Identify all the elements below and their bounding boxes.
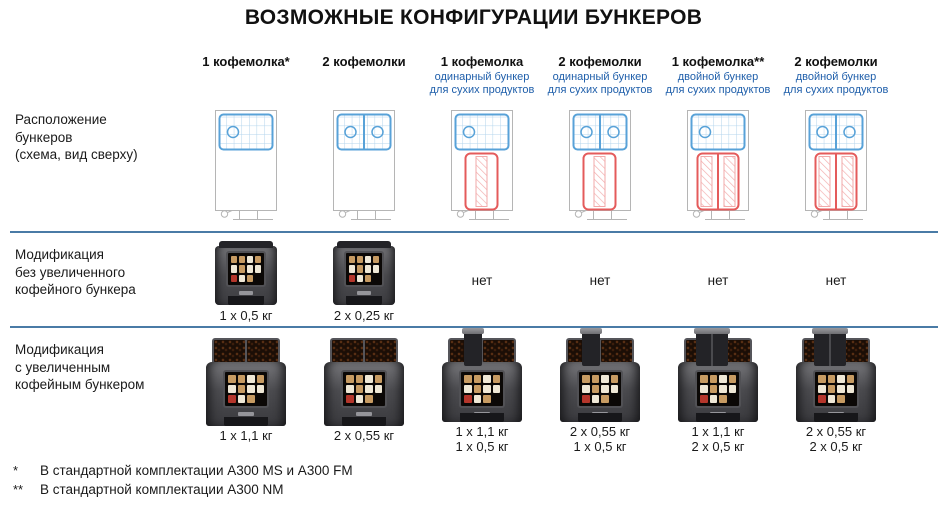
top-view-schematic-1-grinder-double-dry <box>683 108 753 226</box>
drink-icon <box>483 385 491 393</box>
drink-icon <box>474 385 482 393</box>
drink-icon <box>483 375 491 383</box>
footnote-1: * В стандартной комплектации A300 MS и A… <box>13 461 353 480</box>
column-subtitle: двойной бункер для сухих продуктов <box>777 71 895 97</box>
drink-icon <box>373 275 379 282</box>
drink-icon <box>375 385 383 393</box>
drink-icon <box>373 265 379 272</box>
drink-icon <box>365 256 371 263</box>
drink-icon <box>346 385 354 393</box>
drink-icon <box>847 375 855 383</box>
drink-icon <box>611 385 619 393</box>
column-title: 2 кофемолки <box>541 55 659 69</box>
enlarged-cell-2: 2 х 0,55 кг <box>305 328 423 455</box>
machine-dispenser <box>342 417 386 426</box>
not-available-text: нет <box>590 273 611 288</box>
capacity-caption: 1 х 1,1 кг <box>219 429 272 444</box>
standard-cell-3: нет <box>423 233 541 328</box>
capacity-caption: 1 х 1,1 кг 2 х 0,5 кг <box>691 425 744 455</box>
drink-icon <box>238 375 246 383</box>
drink-icon <box>247 275 253 282</box>
standard-cell-5: нет <box>659 233 777 328</box>
footnote-2: ** В стандартной комплектации A300 NM <box>13 480 353 499</box>
drink-icon <box>700 395 708 403</box>
drink-icon <box>464 395 472 403</box>
drink-icon <box>357 275 363 282</box>
drink-icon <box>257 375 265 383</box>
drink-icon <box>828 375 836 383</box>
drink-menu-screen <box>459 370 505 408</box>
drink-icon <box>375 375 383 383</box>
enlarged-cell-6: 2 х 0,55 кг 2 х 0,5 кг <box>777 328 895 455</box>
drink-icon <box>592 385 600 393</box>
drink-icon <box>365 275 371 282</box>
footnote-marker: * <box>13 461 40 480</box>
enlarged-cell-5: 1 х 1,1 кг 2 х 0,5 кг <box>659 328 777 455</box>
drink-icon <box>239 275 245 282</box>
hopper-configurations-page: ВОЗМОЖНЫЕ КОНФИГУРАЦИИ БУНКЕРОВ 1 кофемо… <box>0 0 947 519</box>
column-subtitle: одинарный бункер для сухих продуктов <box>541 71 659 97</box>
coffee-machine-photo-enlarged-hopper-double-dry <box>678 332 758 422</box>
schematic-cell-6 <box>777 105 895 233</box>
drink-icon <box>365 265 371 272</box>
page-title: ВОЗМОЖНЫЕ КОНФИГУРАЦИИ БУНКЕРОВ <box>0 6 947 30</box>
column-title: 1 кофемолка <box>423 55 541 69</box>
dry-products-container <box>582 328 600 366</box>
drink-menu-screen <box>223 370 269 408</box>
dry-products-container-double <box>814 328 846 366</box>
drink-icon <box>365 395 373 403</box>
machine-dispenser <box>224 417 268 426</box>
top-view-schematic-2-grinders-single-dry <box>565 108 635 226</box>
footnote-text: В стандартной комплектации A300 NM <box>40 480 284 499</box>
capacity-caption: 2 х 0,55 кг <box>334 429 394 444</box>
drink-icon <box>357 256 363 263</box>
machine-dispenser <box>228 296 264 305</box>
standard-cell-1: 1 х 0,5 кг <box>187 233 305 328</box>
drink-icon <box>349 275 355 282</box>
drink-icon <box>365 375 373 383</box>
drink-icon <box>828 385 836 393</box>
drink-icon <box>346 375 354 383</box>
drink-icon <box>464 385 472 393</box>
row-label-enlarged: Модификация с увеличенным кофейным бунке… <box>9 328 187 455</box>
drink-icon <box>601 385 609 393</box>
drink-icon <box>837 395 845 403</box>
coffee-machine-photo-enlarged-hopper-single-dry <box>560 332 640 422</box>
machine-button <box>356 412 372 416</box>
drink-icon <box>710 385 718 393</box>
column-header-4: 2 кофемолки одинарный бункер для сухих п… <box>541 53 659 105</box>
enlarged-cell-3: 1 х 1,1 кг 1 х 0,5 кг <box>423 328 541 455</box>
schematic-cell-3 <box>423 105 541 233</box>
drink-icon <box>582 385 590 393</box>
drink-menu-screen <box>344 251 384 287</box>
column-header-6: 2 кофемолки двойной бункер для сухих про… <box>777 53 895 105</box>
footnote-marker: ** <box>13 480 40 499</box>
bean-hopper <box>212 338 280 364</box>
header-spacer <box>9 53 187 105</box>
column-header-2: 2 кофемолки <box>305 53 423 105</box>
footnote-text: В стандартной комплектации A300 MS и A30… <box>40 461 353 480</box>
schematic-cell-4 <box>541 105 659 233</box>
column-title: 1 кофемолка* <box>187 55 305 69</box>
capacity-caption: 2 х 0,55 кг 2 х 0,5 кг <box>806 425 866 455</box>
drink-icon <box>356 375 364 383</box>
bean-hopper <box>566 338 634 364</box>
machine-lid <box>337 241 391 248</box>
schematic-cell-2 <box>305 105 423 233</box>
drink-icon <box>255 256 261 263</box>
drink-icon <box>601 395 609 403</box>
drink-icon <box>719 375 727 383</box>
coffee-machine-photo-enlarged-hopper <box>324 332 404 426</box>
drink-icon <box>228 385 236 393</box>
drink-icon <box>611 395 619 403</box>
schematic-cell-5 <box>659 105 777 233</box>
machine-button <box>238 412 254 416</box>
bean-hopper <box>448 338 516 364</box>
drink-icon <box>231 265 237 272</box>
coffee-machine-photo <box>215 241 277 305</box>
drink-icon <box>464 375 472 383</box>
top-view-schematic-1-grinder <box>211 108 281 226</box>
drink-icon <box>818 385 826 393</box>
footnotes: * В стандартной комплектации A300 MS и A… <box>13 461 353 499</box>
standard-cell-6: нет <box>777 233 895 328</box>
drink-icon <box>847 385 855 393</box>
drink-icon <box>837 375 845 383</box>
drink-icon <box>493 385 501 393</box>
top-view-schematic-1-grinder-single-dry <box>447 108 517 226</box>
drink-icon <box>474 395 482 403</box>
drink-icon <box>592 375 600 383</box>
drink-icon <box>719 385 727 393</box>
capacity-caption: 2 х 0,25 кг <box>334 308 394 323</box>
drink-icon <box>375 395 383 403</box>
drink-icon <box>247 385 255 393</box>
machine-dispenser <box>460 413 504 422</box>
drink-icon <box>346 395 354 403</box>
drink-icon <box>349 265 355 272</box>
drink-icon <box>592 395 600 403</box>
capacity-caption: 2 х 0,55 кг 1 х 0,5 кг <box>570 425 630 455</box>
drink-icon <box>601 375 609 383</box>
drink-icon <box>247 375 255 383</box>
capacity-caption: 1 х 1,1 кг 1 х 0,5 кг <box>455 425 508 455</box>
column-title: 1 кофемолка** <box>659 55 777 69</box>
drink-menu-screen <box>341 370 387 408</box>
drink-icon <box>357 265 363 272</box>
machine-button <box>239 291 253 295</box>
coffee-machine-photo-enlarged-hopper <box>206 332 286 426</box>
coffee-machine-photo <box>333 241 395 305</box>
column-title: 2 кофемолки <box>777 55 895 69</box>
dry-products-container-double <box>696 328 728 366</box>
top-view-schematic-2-grinders-double-dry <box>801 108 871 226</box>
drink-icon <box>493 375 501 383</box>
drink-icon <box>238 385 246 393</box>
not-available-text: нет <box>826 273 847 288</box>
drink-icon <box>356 395 364 403</box>
horizontal-divider <box>10 231 938 233</box>
drink-icon <box>700 375 708 383</box>
column-header-1: 1 кофемолка* <box>187 53 305 105</box>
column-header-3: 1 кофемолка одинарный бункер для сухих п… <box>423 53 541 105</box>
drink-icon <box>818 395 826 403</box>
not-available-text: нет <box>708 273 729 288</box>
schematic-cell-1 <box>187 105 305 233</box>
drink-menu-screen <box>577 370 623 408</box>
drink-icon <box>847 395 855 403</box>
standard-cell-2: 2 х 0,25 кг <box>305 233 423 328</box>
drink-icon <box>493 395 501 403</box>
drink-icon <box>365 385 373 393</box>
column-subtitle: одинарный бункер для сухих продуктов <box>423 71 541 97</box>
column-header-5: 1 кофемолка** двойной бункер для сухих п… <box>659 53 777 105</box>
drink-icon <box>247 256 253 263</box>
drink-icon <box>238 395 246 403</box>
machine-lid <box>219 241 273 248</box>
column-subtitle: двойной бункер для сухих продуктов <box>659 71 777 97</box>
drink-menu-screen <box>695 370 741 408</box>
enlarged-cell-1: 1 х 1,1 кг <box>187 328 305 455</box>
drink-icon <box>474 375 482 383</box>
drink-icon <box>582 375 590 383</box>
not-available-text: нет <box>472 273 493 288</box>
row-label-standard: Модификация без увеличенного кофейного б… <box>9 233 187 328</box>
drink-icon <box>255 265 261 272</box>
configurations-table: 1 кофемолка* 2 кофемолки 1 кофемолка оди… <box>9 53 895 455</box>
machine-dispenser <box>814 413 858 422</box>
drink-icon <box>582 395 590 403</box>
drink-icon <box>231 256 237 263</box>
drink-icon <box>247 395 255 403</box>
drink-menu-screen <box>226 251 266 287</box>
drink-icon <box>729 395 737 403</box>
coffee-machine-photo-enlarged-hopper-single-dry <box>442 332 522 422</box>
machine-button <box>357 291 371 295</box>
drink-icon <box>700 385 708 393</box>
drink-icon <box>231 275 237 282</box>
drink-icon <box>837 385 845 393</box>
drink-icon <box>228 375 236 383</box>
drink-icon <box>719 395 727 403</box>
column-title: 2 кофемолки <box>305 55 423 69</box>
row-label-layout: Расположение бункеров (схема, вид сверху… <box>9 105 187 233</box>
drink-icon <box>611 375 619 383</box>
machine-dispenser <box>346 296 382 305</box>
capacity-caption: 1 х 0,5 кг <box>219 308 272 323</box>
dry-products-container <box>464 328 482 366</box>
top-view-schematic-2-grinders <box>329 108 399 226</box>
machine-dispenser <box>696 413 740 422</box>
enlarged-cell-4: 2 х 0,55 кг 1 х 0,5 кг <box>541 328 659 455</box>
drink-icon <box>483 395 491 403</box>
drink-icon <box>710 375 718 383</box>
machine-dispenser <box>578 413 622 422</box>
drink-icon <box>255 275 261 282</box>
standard-cell-4: нет <box>541 233 659 328</box>
bean-hopper <box>330 338 398 364</box>
drink-icon <box>356 385 364 393</box>
drink-icon <box>373 256 379 263</box>
drink-icon <box>247 265 253 272</box>
drink-icon <box>257 395 265 403</box>
drink-icon <box>349 256 355 263</box>
drink-icon <box>828 395 836 403</box>
drink-icon <box>239 265 245 272</box>
drink-icon <box>729 375 737 383</box>
drink-icon <box>257 385 265 393</box>
drink-icon <box>710 395 718 403</box>
drink-icon <box>228 395 236 403</box>
coffee-machine-photo-enlarged-hopper-double-dry <box>796 332 876 422</box>
drink-icon <box>729 385 737 393</box>
drink-menu-screen <box>813 370 859 408</box>
drink-icon <box>818 375 826 383</box>
drink-icon <box>239 256 245 263</box>
